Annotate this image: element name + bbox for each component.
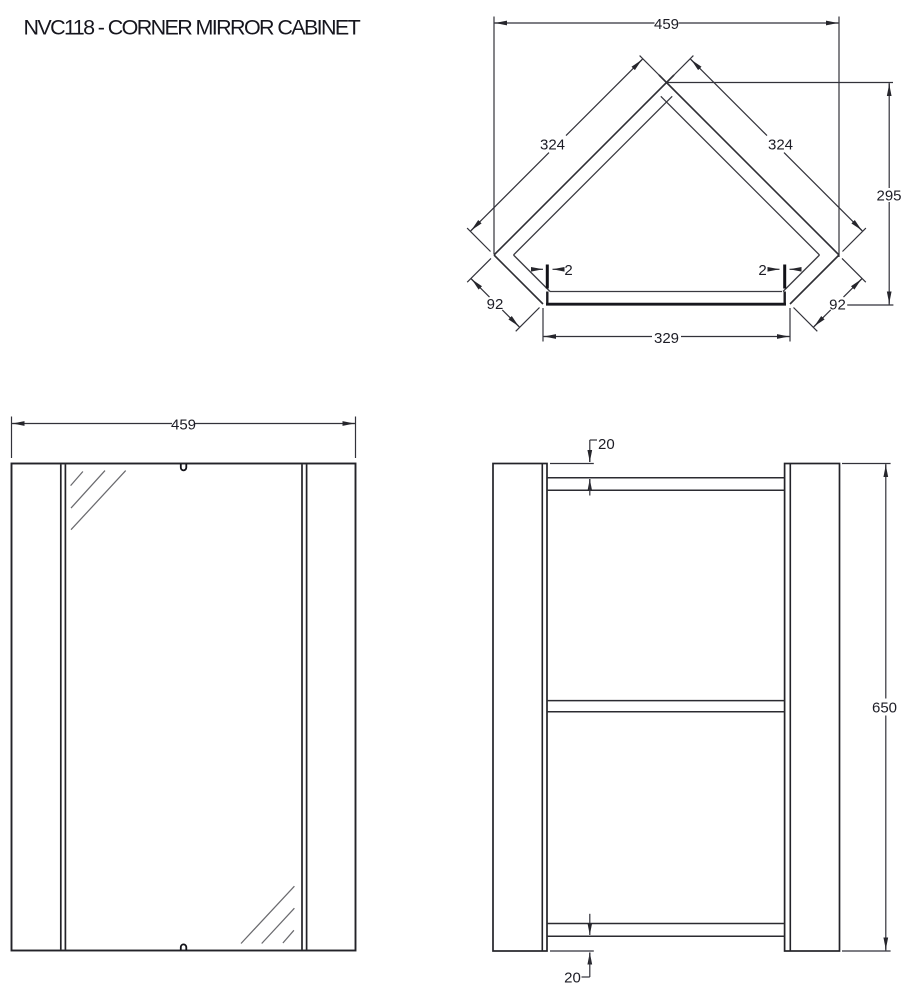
svg-text:92: 92 — [829, 296, 846, 313]
svg-text:459: 459 — [171, 416, 196, 433]
svg-text:2: 2 — [564, 262, 572, 279]
svg-text:20: 20 — [598, 436, 615, 453]
svg-text:324: 324 — [540, 137, 565, 154]
svg-text:NVC118 - CORNER MIRROR CABINET: NVC118 - CORNER MIRROR CABINET — [24, 16, 361, 40]
svg-text:20: 20 — [564, 969, 581, 986]
svg-text:650: 650 — [872, 699, 897, 716]
svg-text:295: 295 — [876, 187, 901, 204]
svg-text:329: 329 — [654, 330, 679, 347]
svg-text:324: 324 — [768, 137, 793, 154]
svg-text:459: 459 — [654, 16, 679, 33]
svg-text:92: 92 — [487, 296, 504, 313]
svg-text:2: 2 — [758, 262, 766, 279]
